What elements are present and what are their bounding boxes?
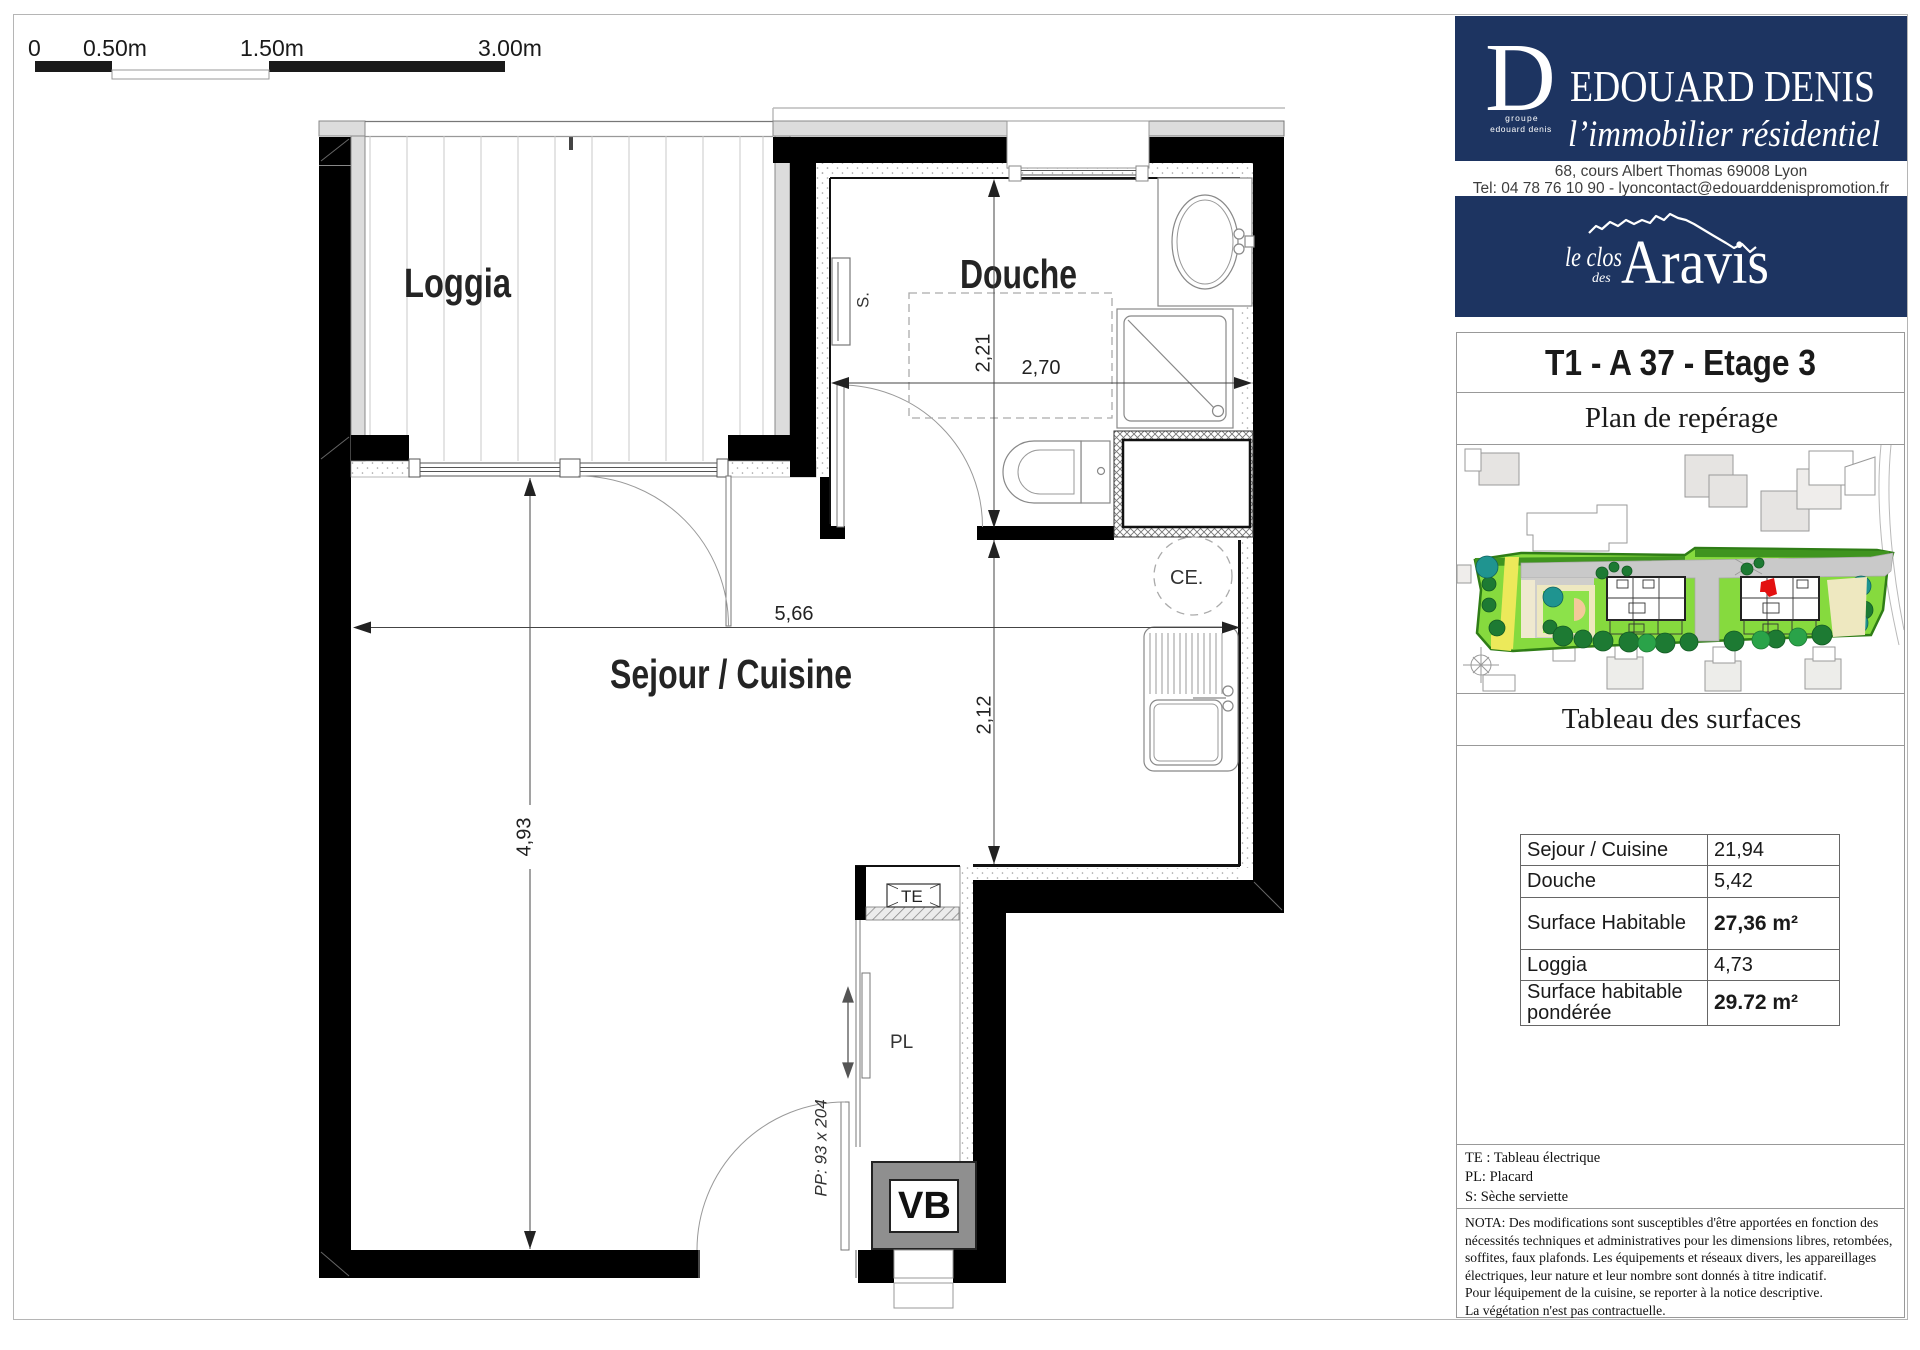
svg-text:1.50m: 1.50m [240, 35, 304, 61]
svg-text:3.00m: 3.00m [478, 35, 542, 61]
svg-text:CE.: CE. [1170, 567, 1203, 589]
svg-text:T1 - A 37 - Etage 3: T1 - A 37 - Etage 3 [1545, 342, 1816, 383]
svg-text:5,66: 5,66 [775, 603, 814, 625]
svg-text:PP: 93 x 204: PP: 93 x 204 [811, 1099, 830, 1196]
svg-text:TE: TE [901, 887, 923, 906]
svg-text:le clos: le clos [1565, 242, 1622, 272]
svg-text:groupe: groupe [1505, 113, 1539, 123]
svg-text:0.50m: 0.50m [83, 35, 147, 61]
svg-text:VB: VB [898, 1185, 951, 1227]
svg-text:0: 0 [28, 35, 41, 61]
svg-text:EDOUARD DENIS: EDOUARD DENIS [1570, 62, 1875, 111]
svg-text:l’immobilier résidentiel: l’immobilier résidentiel [1568, 114, 1880, 155]
svg-text:2,12: 2,12 [973, 696, 995, 735]
svg-text:Douche: Douche [960, 251, 1077, 297]
svg-text:Aravis: Aravis [1621, 229, 1769, 297]
svg-text:edouard denis: edouard denis [1490, 124, 1552, 134]
svg-text:Sejour / Cuisine: Sejour / Cuisine [610, 651, 852, 697]
svg-text:4,93: 4,93 [513, 818, 535, 857]
svg-text:des: des [1592, 271, 1611, 286]
svg-text:2,21: 2,21 [972, 334, 994, 373]
svg-text:PL: PL [890, 1032, 913, 1053]
svg-text:2,70: 2,70 [1022, 357, 1061, 379]
svg-text:Loggia: Loggia [404, 260, 512, 306]
svg-text:S.: S. [853, 292, 872, 308]
